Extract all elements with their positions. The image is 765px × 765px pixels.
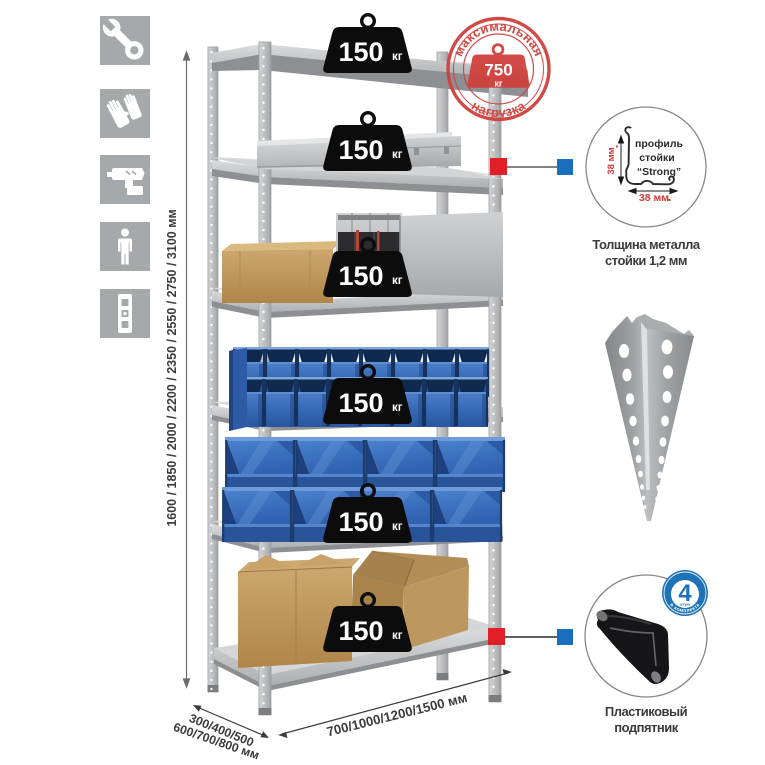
svg-text:кг: кг bbox=[494, 79, 503, 89]
svg-text:150: 150 bbox=[338, 507, 383, 537]
svg-text:штуки: штуки bbox=[680, 603, 691, 607]
svg-text:“Strong”: “Strong” bbox=[637, 166, 681, 178]
svg-text:150: 150 bbox=[338, 37, 383, 67]
svg-text:150: 150 bbox=[338, 135, 383, 165]
svg-text:кг: кг bbox=[392, 51, 403, 63]
svg-text:150: 150 bbox=[338, 616, 383, 646]
svg-text:38 мм: 38 мм bbox=[606, 147, 617, 174]
svg-text:Пластиковый: Пластиковый bbox=[605, 704, 688, 719]
svg-text:стойки: стойки bbox=[639, 152, 674, 164]
svg-text:38 мм: 38 мм bbox=[639, 192, 669, 204]
svg-text:профиль: профиль bbox=[635, 138, 683, 150]
svg-text:кг: кг bbox=[392, 402, 403, 414]
svg-text:750: 750 bbox=[484, 61, 512, 80]
svg-text:кг: кг bbox=[392, 630, 403, 642]
svg-text:подпятник: подпятник bbox=[614, 720, 679, 735]
svg-text:стойки 1,2 мм: стойки 1,2 мм bbox=[605, 253, 687, 268]
svg-text:150: 150 bbox=[338, 388, 383, 418]
svg-text:кг: кг bbox=[392, 149, 403, 161]
svg-text:150: 150 bbox=[338, 261, 383, 291]
svg-text:кг: кг bbox=[392, 275, 403, 287]
svg-text:кг: кг bbox=[392, 521, 403, 533]
svg-text:1600 / 1850 / 2000 / 2200 / 23: 1600 / 1850 / 2000 / 2200 / 2350 / 2550 … bbox=[165, 209, 179, 526]
svg-text:Толщина металла: Толщина металла bbox=[592, 237, 700, 252]
